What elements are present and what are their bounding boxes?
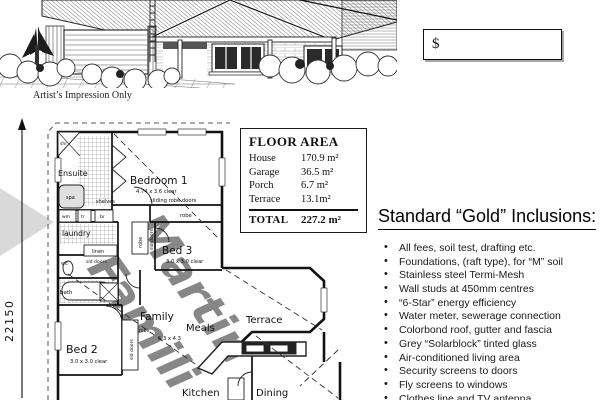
room-size-family: 5.3 x 4.3 — [158, 336, 181, 342]
list-item: Foundations, (raft type), for “M” soil — [382, 257, 600, 268]
room-label-shr: shr — [60, 141, 67, 147]
room-size-bed2: 3.0 x 3.0 clear — [70, 359, 108, 365]
brochure-page: { "header": { "price_prefix": "$", "capt… — [0, 0, 600, 400]
room-label-br: br — [100, 214, 105, 220]
list-item: Wall studs at 450mm centres — [382, 284, 600, 295]
dimension-line: 22150 — [3, 118, 26, 398]
house-sketch — [0, 0, 397, 88]
room-label-wc: wc — [61, 261, 68, 267]
room-label-bath: bath — [60, 290, 73, 296]
list-item: Clothes line and TV antenna — [382, 394, 600, 400]
label-sld-doors: sld doors — [86, 259, 107, 265]
fascia-gutter — [146, 37, 336, 42]
room-label-bed2: Bed 2 — [66, 343, 98, 356]
label-linen: linen — [92, 249, 104, 255]
room-label-spa: spa — [66, 195, 75, 201]
list-item: Colorbond roof, gutter and fascia — [382, 325, 600, 336]
label-robe: robe — [139, 328, 150, 334]
floor-plan: Martin Famili 22150 — [0, 110, 375, 400]
room-size-bed3: 3.0 x 3.0 clear — [166, 259, 204, 265]
list-item: Water meter, sewerage connection — [382, 311, 600, 322]
label-robe: robe — [138, 237, 144, 248]
room-label-kitchen: Kitchen — [182, 388, 220, 399]
list-item: Stainless steel Termi-Mesh — [382, 270, 600, 281]
list-item: Security screens to doors — [382, 366, 600, 377]
list-item: Fly screens to windows — [382, 380, 600, 391]
room-label-wm: wm — [62, 215, 70, 220]
room-label-family: Family — [140, 311, 174, 323]
label-sld-doors: sld doors — [149, 229, 155, 250]
room-label-bedroom1: Bedroom 1 — [130, 175, 188, 187]
label-sliding-robe-doors: sliding robe doors — [150, 198, 197, 204]
inclusions-heading: Standard “Gold” Inclusions: — [378, 206, 596, 230]
dimension-label: 22150 — [3, 300, 16, 343]
room-label-tr: tr — [81, 214, 85, 220]
inclusions-list: All fees, soil test, drafting etc. Found… — [382, 243, 600, 400]
room-label-bed3: Bed 3 — [162, 245, 192, 257]
window-main — [209, 44, 267, 75]
room-label-ensuite: Ensuite — [58, 169, 88, 178]
artist-impression-caption: Artist’s Impression Only — [33, 90, 132, 101]
list-item: Grey “Solarblock” tinted glass — [382, 339, 600, 350]
room-label-dining: Dining — [256, 388, 288, 399]
price-currency: $ — [424, 30, 440, 59]
price-box: $ — [423, 29, 562, 60]
label-sld-doors: sld doors — [129, 339, 135, 360]
label-robe: robe — [180, 213, 192, 219]
room-label-meals: Meals — [186, 323, 215, 334]
room-label-laundry: laundry — [62, 229, 91, 238]
room-size-bedroom1: 4.74 x 3.6 clear — [136, 189, 177, 195]
list-item: Air-conditioned living area — [382, 353, 600, 364]
room-label-terrace: Terrace — [245, 315, 282, 326]
room-label-shelves: shelves — [96, 199, 115, 205]
list-item: All fees, soil test, drafting etc. — [382, 243, 600, 254]
list-item: “6-Star” energy efficiency — [382, 298, 600, 309]
